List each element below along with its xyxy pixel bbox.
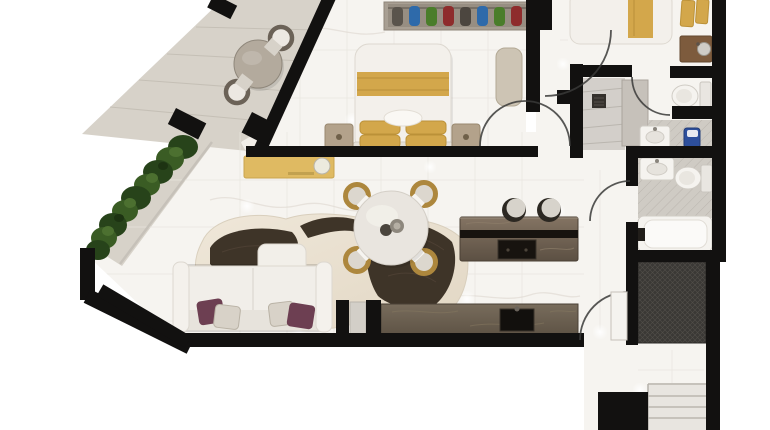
counter-sink — [500, 309, 534, 331]
wall-right-upper — [712, 0, 726, 262]
bathtub — [638, 216, 712, 252]
wall-bath1-left — [570, 64, 583, 158]
bed1-bolster — [384, 110, 422, 126]
wardrobe-open — [384, 2, 532, 30]
wall-lobby-corner-block — [598, 392, 648, 430]
floor-plan-render — [0, 0, 770, 430]
bathtub-tap — [638, 228, 645, 241]
wall-bedroom1-bottom — [246, 146, 538, 157]
wall-closet-left — [626, 262, 638, 345]
kitchen-counter — [350, 302, 578, 334]
bed2-gold-runner — [628, 0, 653, 38]
bed2-mattress — [570, 0, 672, 44]
wall-kitchen-stub-left — [336, 300, 349, 334]
sofa-armrest-left — [173, 262, 189, 332]
wall-toilet-divider — [672, 106, 712, 119]
shower-drain — [592, 94, 606, 108]
counter-faucet — [515, 307, 520, 312]
wood-vanity — [680, 36, 712, 62]
gold-console — [244, 156, 334, 178]
bar-stool-left — [502, 198, 526, 222]
sink-2 — [640, 158, 674, 180]
kitchen-cabinet-light — [350, 302, 366, 334]
dark-doormat — [638, 262, 706, 343]
sofa-pillow-maroon-right — [286, 302, 315, 330]
wall-bottom-main — [182, 333, 584, 347]
entry-door-leaf — [611, 292, 627, 340]
bed-1 — [353, 44, 453, 155]
island-black-band — [460, 230, 578, 238]
sofa-pillow-pattern-left — [213, 304, 241, 330]
staircase — [648, 384, 706, 430]
console-decor-bowl — [314, 158, 330, 174]
wall-kitchen-stub-right — [366, 300, 381, 334]
blue-basket — [684, 128, 700, 148]
sofa-armrest-right — [316, 262, 332, 332]
wall-bath2-left-upper — [626, 146, 638, 186]
kitchen-island — [460, 217, 578, 261]
dining-set — [341, 178, 441, 279]
bed1-gold-throw — [357, 72, 449, 96]
wall-hall-stub-top — [540, 0, 552, 30]
bedroom1-bench — [496, 48, 522, 106]
wall-right-lower — [706, 262, 720, 430]
wall-bedroom1-right — [526, 0, 540, 112]
island-cooktop — [498, 240, 536, 259]
wall-right-jog — [706, 250, 726, 262]
bar-stool-right — [537, 198, 561, 222]
sink-1 — [640, 126, 670, 148]
floor-plan-canvas — [0, 0, 770, 430]
bathroom-2 — [638, 158, 712, 252]
wall-bath-divider — [626, 146, 726, 158]
